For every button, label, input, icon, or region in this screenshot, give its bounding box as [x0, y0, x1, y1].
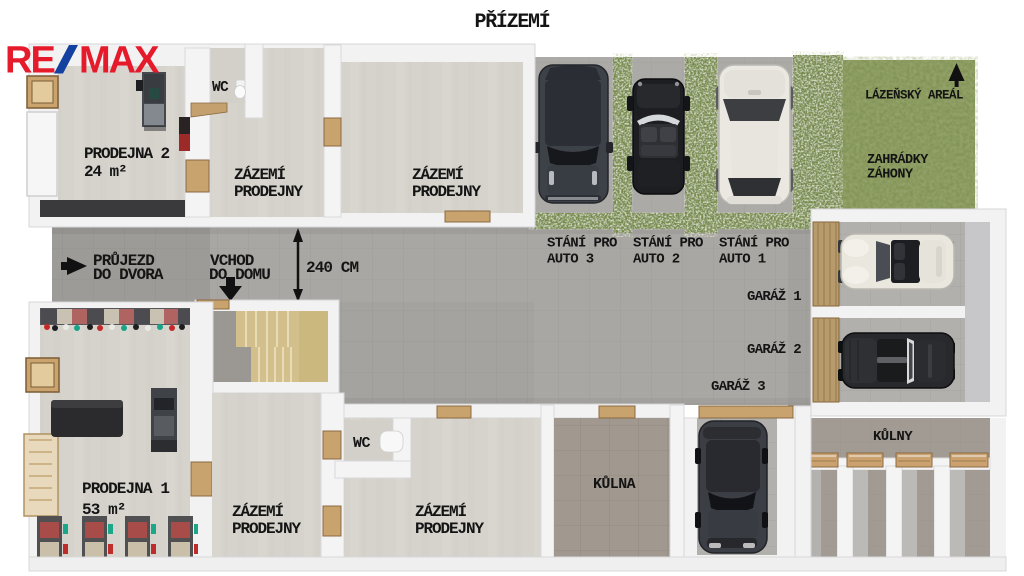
svg-text:24 m²: 24 m² — [84, 163, 127, 181]
svg-text:AUTO 3: AUTO 3 — [547, 252, 594, 268]
svg-text:DO DVORA: DO DVORA — [93, 266, 164, 284]
svg-text:WC: WC — [353, 435, 371, 452]
svg-text:RE: RE — [5, 40, 54, 82]
svg-text:ZAHRÁDKY: ZAHRÁDKY — [867, 152, 929, 168]
svg-text:GARÁŽ 1: GARÁŽ 1 — [747, 287, 801, 305]
svg-text:STÁNÍ PRO: STÁNÍ PRO — [547, 234, 617, 252]
svg-text:MAX: MAX — [79, 40, 160, 82]
svg-text:ZÁHONY: ZÁHONY — [867, 167, 914, 183]
svg-text:PRODEJNA 1: PRODEJNA 1 — [82, 480, 169, 498]
svg-text:KŮLNA: KŮLNA — [593, 475, 636, 493]
svg-text:LÁZEŇSKÝ AREÁL: LÁZEŇSKÝ AREÁL — [865, 88, 963, 103]
svg-text:ZÁZEMÍ: ZÁZEMÍ — [415, 502, 467, 521]
svg-text:ZÁZEMÍ: ZÁZEMÍ — [232, 502, 284, 521]
svg-text:ZÁZEMÍ: ZÁZEMÍ — [234, 165, 286, 184]
svg-text:STÁNÍ PRO: STÁNÍ PRO — [719, 234, 789, 252]
svg-text:PRODEJNY: PRODEJNY — [412, 183, 482, 201]
svg-text:STÁNÍ PRO: STÁNÍ PRO — [633, 234, 703, 252]
svg-text:KŮLNY: KŮLNY — [873, 427, 913, 445]
svg-text:PRODEJNY: PRODEJNY — [234, 183, 304, 201]
svg-text:PRODEJNY: PRODEJNY — [232, 520, 302, 538]
svg-text:GARÁŽ 2: GARÁŽ 2 — [747, 340, 801, 358]
svg-text:AUTO 1: AUTO 1 — [719, 252, 766, 268]
svg-text:GARÁŽ 3: GARÁŽ 3 — [711, 377, 765, 395]
svg-text:AUTO 2: AUTO 2 — [633, 252, 680, 268]
svg-text:PRODEJNY: PRODEJNY — [415, 520, 485, 538]
svg-text:53 m²: 53 m² — [82, 501, 126, 519]
svg-text:ZÁZEMÍ: ZÁZEMÍ — [412, 165, 464, 184]
svg-text:PRODEJNA 2: PRODEJNA 2 — [84, 145, 170, 163]
svg-text:PŘÍZEMÍ: PŘÍZEMÍ — [475, 9, 550, 34]
svg-text:WC: WC — [212, 80, 229, 96]
svg-text:DO DOMU: DO DOMU — [209, 266, 270, 284]
svg-text:240 CM: 240 CM — [306, 259, 359, 277]
